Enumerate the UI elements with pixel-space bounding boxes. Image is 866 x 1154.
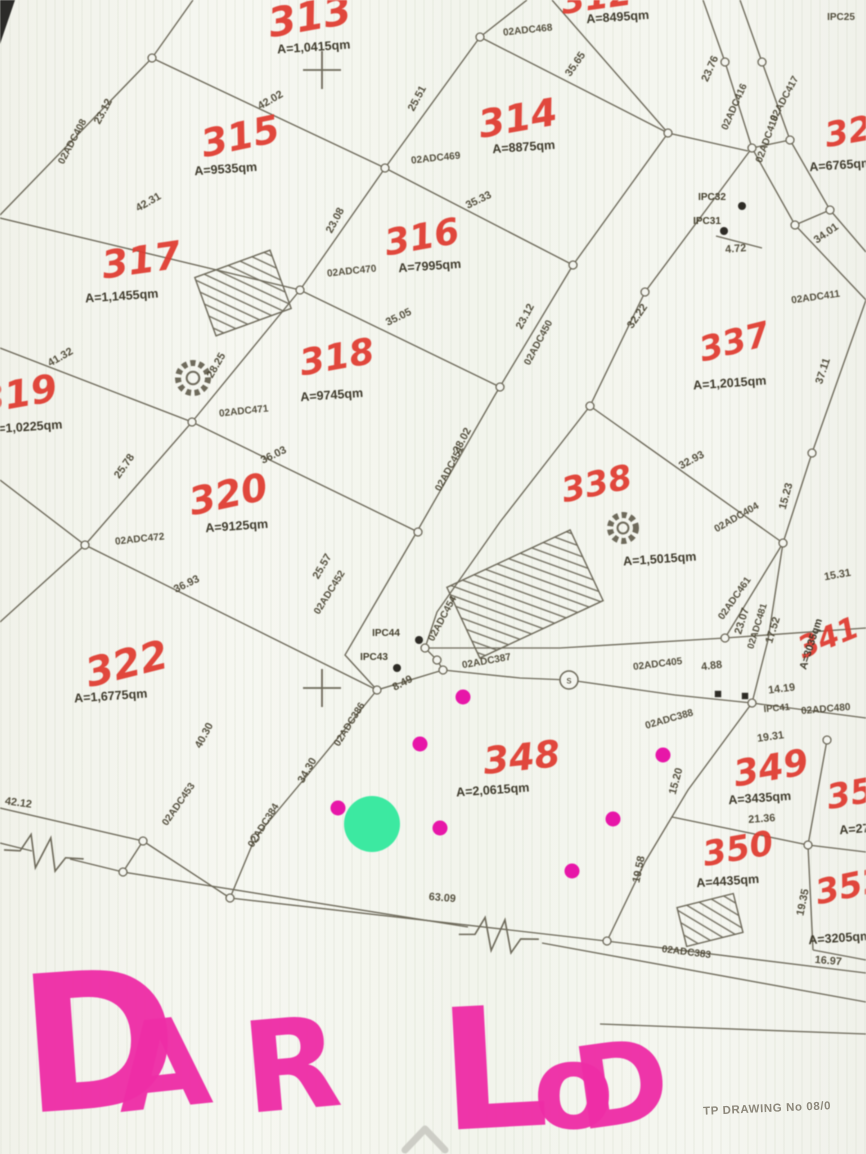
- survey-annotation: 02ADC411: [791, 289, 841, 307]
- ipc-point-dot: [738, 202, 746, 210]
- survey-annotation: 32.93: [677, 449, 707, 472]
- scan-corner-artifact: [0, 0, 15, 44]
- parcel-number-338: 338: [558, 457, 636, 511]
- parcel-area-label: A=4435qm: [696, 872, 760, 890]
- hatched-structure-symbol: [447, 530, 603, 658]
- survey-annotation: 02ADC386: [332, 700, 368, 748]
- parcel-number-337: 337: [695, 314, 774, 370]
- parcel-number-315: 315: [197, 107, 284, 167]
- manhole-symbol: s: [560, 671, 578, 689]
- boundary-node: [721, 634, 729, 642]
- survey-annotation: 02ADC469: [411, 150, 462, 166]
- survey-annotation: 37.11: [813, 357, 833, 386]
- scanned-plan-layer: s42.0225.5123.1202ADC40842.3123.0835.333…: [0, 0, 866, 1034]
- survey-annotation: 02ADC451: [433, 444, 466, 493]
- boundary-node: [119, 868, 127, 876]
- ipc-point-dot: [720, 227, 728, 235]
- parcel-boundary-line: [70, 859, 123, 872]
- survey-annotation: 02ADC472: [115, 531, 166, 547]
- boundary-node: [296, 286, 304, 294]
- grid-cross-mark: [303, 669, 341, 707]
- parcel-area-label: A=9535qm: [194, 160, 258, 178]
- boundary-node: [414, 528, 422, 536]
- hatched-structure-symbol: [195, 250, 291, 336]
- boundary-node: [748, 699, 756, 707]
- survey-monument-symbol: [610, 515, 636, 541]
- survey-annotation: IPC41: [763, 702, 791, 715]
- parcel-area-label: A=1,5015qm: [623, 549, 697, 568]
- parcel-boundary-line: [443, 670, 752, 703]
- survey-annotation: 34.01: [812, 221, 841, 246]
- boundary-node: [804, 841, 812, 849]
- survey-annotation: 19.35: [794, 888, 811, 917]
- magenta-point-marker[interactable]: [456, 690, 471, 705]
- parcel-area-label: A=1,6775qm: [74, 686, 148, 705]
- parcel-area-label: A=6765qm: [809, 156, 866, 174]
- survey-annotation: 28.25: [204, 351, 228, 380]
- survey-annotation: 19.31: [756, 729, 784, 745]
- survey-annotation: 36.93: [172, 573, 202, 596]
- parcel-number-320: 320: [185, 465, 272, 525]
- magenta-point-marker[interactable]: [606, 812, 621, 827]
- parcel-boundary-line: [123, 872, 468, 927]
- handwritten-note-dar-lod: DARLoD: [13, 926, 678, 1154]
- parcel-boundary-line: [0, 0, 193, 215]
- parcel-number-350: 350: [700, 823, 777, 875]
- boundary-node: [823, 736, 831, 744]
- magenta-point-marker[interactable]: [413, 737, 428, 752]
- parcel-number-317: 317: [99, 233, 184, 288]
- parcel-boundary-line: [143, 841, 230, 898]
- magenta-point-marker[interactable]: [565, 864, 580, 879]
- green-location-marker[interactable]: [344, 796, 400, 852]
- survey-annotation: 8.49: [390, 673, 414, 693]
- boundary-node: [496, 383, 504, 391]
- parcel-number-348: 348: [481, 732, 562, 783]
- ipc-point-dot: [393, 664, 401, 672]
- handwriting-letter: A: [108, 990, 217, 1141]
- boundary-node: [603, 937, 611, 945]
- parcel-number-318: 318: [296, 331, 377, 384]
- boundary-node: [779, 539, 787, 547]
- survey-annotation: 36.03: [259, 444, 289, 467]
- survey-annotation: 4.88: [700, 659, 722, 673]
- parcel-area-label: A=9125qm: [205, 517, 269, 535]
- boundary-node: [721, 58, 729, 66]
- parcel-area-label: A=3205qm: [808, 929, 866, 947]
- boundary-node: [81, 541, 89, 549]
- boundary-node: [791, 221, 799, 229]
- survey-annotation: 40.30: [193, 721, 216, 751]
- survey-annotation: 19.58: [630, 855, 647, 884]
- magenta-point-marker[interactable]: [656, 748, 671, 763]
- parcel-boundary-line: [590, 148, 752, 406]
- boundary-node: [148, 54, 156, 62]
- boundary-node: [808, 449, 816, 457]
- survey-annotation: 34.30: [295, 756, 319, 785]
- break-line-zigzag-symbol: [2, 830, 86, 875]
- survey-annotation: 15.31: [823, 567, 852, 584]
- survey-annotation: 25.78: [112, 452, 137, 481]
- parcel-area-label: A=2775qm: [839, 819, 866, 837]
- svg-text:s: s: [567, 676, 572, 687]
- survey-annotation: 15.23: [777, 482, 796, 511]
- survey-annotation: 35.05: [384, 306, 414, 329]
- survey-annotation: 25.57: [310, 552, 334, 581]
- ipc-point-label: IPC43: [360, 652, 388, 663]
- ipc-point-label: IPC31: [693, 216, 721, 227]
- survey-annotation: 42.12: [4, 795, 32, 811]
- boundary-node: [439, 666, 447, 674]
- survey-annotation: 02ADC408: [56, 117, 89, 166]
- parcel-number-349: 349: [730, 742, 811, 795]
- parcel-area-label: A=8495qm: [586, 8, 650, 26]
- parcel-area-label: A=1,0225qm: [0, 417, 63, 436]
- survey-annotation: 02ADC388: [644, 707, 695, 731]
- survey-annotation: 32.22: [625, 302, 650, 331]
- chevron-up-icon[interactable]: [405, 1129, 445, 1150]
- parcel-area-label: A=2,0615qm: [456, 780, 530, 799]
- parcel-area-label: A=9745qm: [300, 386, 364, 404]
- boundary-node: [373, 686, 381, 694]
- parcel-number-351: 351: [824, 766, 866, 818]
- survey-annotation: 23.08: [324, 206, 347, 236]
- survey-annotation: 15.20: [667, 767, 686, 796]
- survey-annotation: 4.72: [725, 242, 747, 256]
- survey-annotation: 02ADC470: [327, 263, 378, 279]
- survey-annotation: 42.31: [134, 190, 163, 214]
- boundary-node: [664, 129, 672, 137]
- boundary-node: [476, 33, 484, 41]
- survey-annotation: 23.76: [699, 54, 721, 84]
- survey-annotation: 02ADC418: [754, 114, 781, 165]
- survey-annotation: 23.12: [92, 97, 115, 127]
- parcel-number-316: 316: [381, 211, 462, 264]
- cadastral-map-canvas: s42.0225.5123.1202ADC40842.3123.0835.333…: [0, 0, 866, 1154]
- survey-annotation: 35.33: [464, 189, 494, 212]
- parcel-area-label: A=1,2015qm: [693, 373, 767, 392]
- boundary-node: [748, 144, 756, 152]
- handwriting-letter: D: [565, 1012, 677, 1154]
- hatched-structure-symbol: [677, 894, 743, 947]
- grid-cross-mark: [303, 51, 341, 89]
- parcel-area-label: A=3435qm: [728, 789, 792, 807]
- survey-annotation: 23.07: [732, 606, 751, 635]
- boundary-node: [758, 58, 766, 66]
- survey-point-dot: [742, 693, 748, 699]
- magenta-point-marker[interactable]: [433, 821, 448, 836]
- survey-point-dot: [715, 691, 721, 697]
- survey-annotation: 14.19: [767, 681, 795, 696]
- survey-annotation: 02ADC453: [160, 781, 198, 828]
- ipc-point-label: IPC32: [698, 192, 726, 203]
- survey-annotation: 35.65: [563, 50, 588, 79]
- parcel-area-label: A=7995qm: [398, 257, 462, 275]
- boundary-node: [139, 837, 147, 845]
- parcel-number-319: 319: [0, 366, 61, 423]
- boundary-node: [421, 644, 429, 652]
- boundary-node: [826, 206, 834, 214]
- survey-annotation: IPC25: [827, 12, 855, 23]
- survey-annotation: 02ADC454: [426, 594, 459, 643]
- parcel-boundary-line: [123, 841, 143, 872]
- survey-annotation: 02ADC384: [246, 801, 282, 849]
- survey-annotation: 17.52: [763, 615, 782, 644]
- parcel-area-label: A=8875qm: [492, 138, 556, 156]
- boundary-node: [586, 402, 594, 410]
- survey-monument-symbol: [178, 363, 208, 393]
- boundary-node: [569, 261, 577, 269]
- survey-annotation: 16.97: [814, 954, 842, 968]
- boundary-node: [786, 136, 794, 144]
- parcel-number-352: 352: [812, 859, 866, 913]
- survey-annotation: 25.51: [406, 84, 429, 114]
- parcel-area-label: A=1,1455qm: [85, 286, 159, 305]
- ipc-point-label: IPC44: [372, 628, 400, 639]
- boundary-node: [226, 894, 234, 902]
- parcel-number-321: 321: [822, 104, 866, 156]
- survey-annotation: 63.09: [428, 891, 456, 905]
- survey-annotation: 23.12: [514, 302, 537, 332]
- boundary-node: [381, 164, 389, 172]
- parcel-boundary-line: [795, 210, 830, 225]
- magenta-point-marker[interactable]: [331, 801, 346, 816]
- map-screen: s42.0225.5123.1202ADC40842.3123.0835.333…: [0, 0, 866, 1154]
- survey-annotation: 02ADC468: [503, 22, 554, 38]
- parcel-boundary-line: [783, 300, 866, 543]
- boundary-node: [188, 418, 196, 426]
- survey-annotation: 02ADC383: [661, 944, 712, 961]
- handwriting-letter: R: [237, 988, 346, 1143]
- parcel-boundary-line: [0, 808, 143, 841]
- survey-annotation: 02ADC416: [720, 82, 750, 132]
- survey-annotation: 02ADC404: [713, 500, 762, 534]
- ipc-point-dot: [415, 636, 423, 644]
- survey-annotation: 02ADC471: [219, 403, 270, 419]
- break-line-zigzag-symbol: [457, 915, 540, 957]
- parcel-boundary-line: [573, 133, 668, 265]
- survey-annotation: 02ADC405: [632, 656, 683, 673]
- boundary-node: [641, 288, 649, 296]
- boundary-node: [433, 656, 441, 664]
